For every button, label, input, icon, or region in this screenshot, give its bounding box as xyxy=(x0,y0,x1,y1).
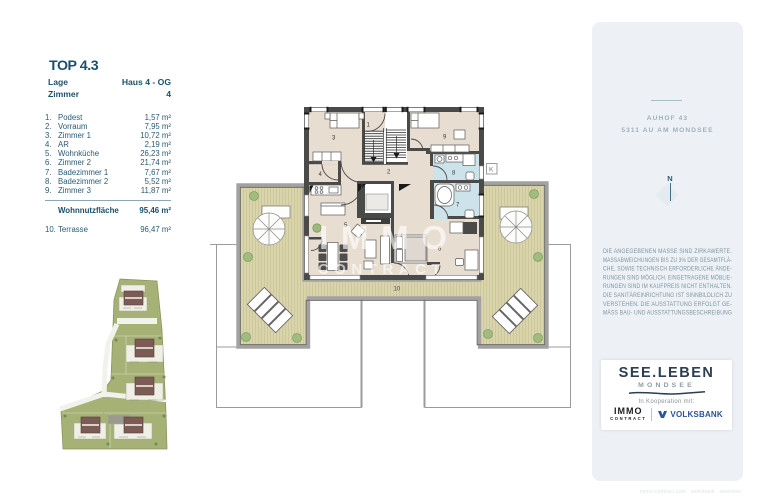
svg-text:RUNGEN SIND IM KAUFPREIS NICHT: RUNGEN SIND IM KAUFPREIS NICHT ENTHALTEN… xyxy=(603,283,732,290)
svg-text:RUNGEN SIND MÖGLICH. EINGETRAG: RUNGEN SIND MÖGLICH. EINGETRAGENE MÖBLIE… xyxy=(603,273,732,281)
svg-text:DIE SANITÄREINRICHTUNG IST SIN: DIE SANITÄREINRICHTUNG IST SINNBILDLICH … xyxy=(603,291,732,299)
svg-text:CONTRACT: CONTRACT xyxy=(318,261,446,278)
svg-text:10: 10 xyxy=(394,287,401,293)
svg-text:K: K xyxy=(489,167,494,174)
svg-text:CHE, SOWIE TECHNISCH ERFORDERL: CHE, SOWIE TECHNISCH ERFORDERLICHE ÄNDE- xyxy=(603,265,732,273)
svg-text:MASSABWEICHUNGEN BIS ZU 3% DER: MASSABWEICHUNGEN BIS ZU 3% DER GESAMTFLÄ… xyxy=(603,256,732,264)
svg-text:MÄSS BAU- UND AUSSTATTUNGSBESC: MÄSS BAU- UND AUSSTATTUNGSBESCHREIBUNG xyxy=(603,309,732,317)
svg-text:DIE ANGEGEBENEN MASSE SIND ZIR: DIE ANGEGEBENEN MASSE SIND ZIRKAWERTE. xyxy=(603,248,732,255)
svg-text:VERSTEHEN. DIE AUSSTATTUNG ERF: VERSTEHEN. DIE AUSSTATTUNG ERFOLGT GE- xyxy=(603,301,732,308)
